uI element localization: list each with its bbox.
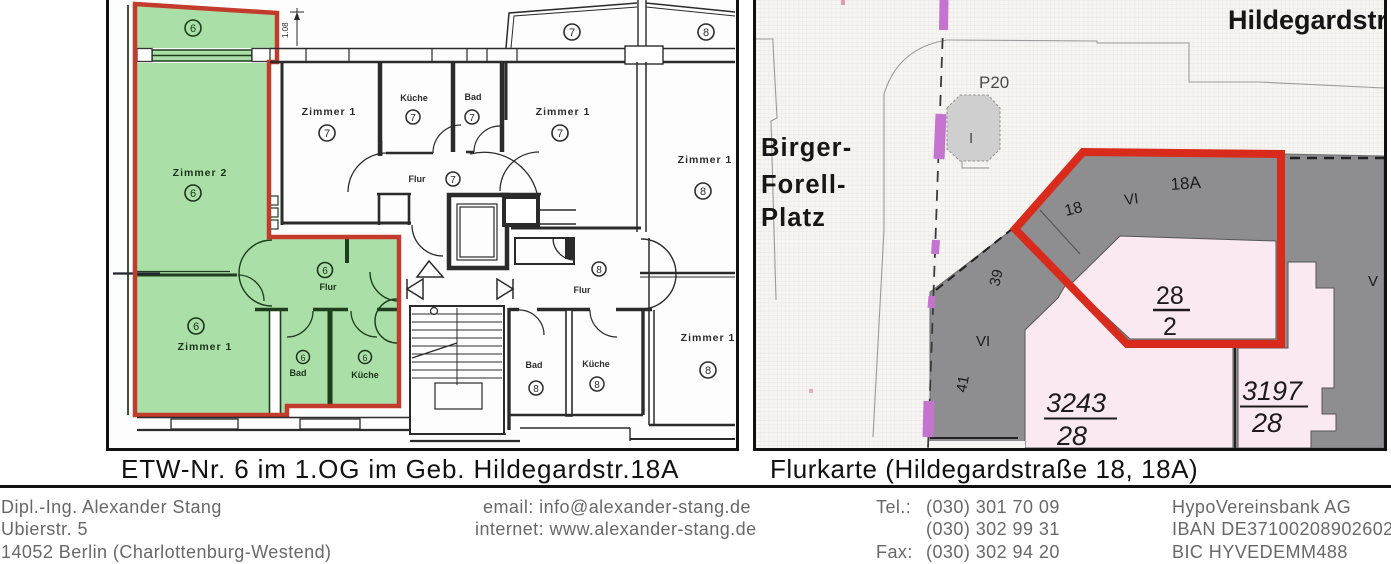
svg-text:Bad: Bad bbox=[464, 92, 481, 102]
svg-text:V: V bbox=[1368, 273, 1378, 290]
svg-text:6: 6 bbox=[300, 353, 305, 363]
svg-text:Küche: Küche bbox=[351, 370, 379, 380]
svg-text:2: 2 bbox=[1163, 313, 1177, 341]
svg-text:I: I bbox=[969, 130, 973, 147]
svg-text:Flur: Flur bbox=[574, 285, 591, 295]
svg-text:6: 6 bbox=[193, 321, 199, 333]
svg-text:Hildegardstr.: Hildegardstr. bbox=[1228, 5, 1384, 35]
svg-text:Bad: Bad bbox=[525, 360, 542, 370]
svg-text:Küche: Küche bbox=[400, 93, 428, 103]
svg-text:3243: 3243 bbox=[1046, 388, 1106, 418]
svg-text:8: 8 bbox=[700, 186, 706, 198]
svg-text:Zimmer 1: Zimmer 1 bbox=[302, 106, 357, 118]
svg-text:Küche: Küche bbox=[582, 359, 610, 369]
svg-text:7: 7 bbox=[569, 27, 575, 39]
svg-text:Birger-: Birger- bbox=[761, 134, 852, 162]
svg-text:7: 7 bbox=[557, 128, 563, 140]
svg-text:Forell-: Forell- bbox=[761, 171, 847, 199]
svg-text:6: 6 bbox=[322, 266, 328, 277]
svg-text:7: 7 bbox=[469, 113, 475, 124]
svg-text:Zimmer 1: Zimmer 1 bbox=[681, 332, 735, 344]
svg-text:8: 8 bbox=[705, 365, 711, 377]
svg-text:1.08: 1.08 bbox=[281, 22, 290, 38]
svg-text:8: 8 bbox=[596, 265, 602, 276]
svg-text:Zimmer 1: Zimmer 1 bbox=[678, 154, 733, 166]
svg-text:P20: P20 bbox=[979, 73, 1009, 92]
svg-text:18A: 18A bbox=[1170, 173, 1202, 194]
svg-text:28: 28 bbox=[1251, 408, 1282, 438]
svg-text:6: 6 bbox=[362, 353, 367, 363]
svg-text:41: 41 bbox=[953, 374, 973, 393]
svg-text:Zimmer 1: Zimmer 1 bbox=[178, 341, 233, 353]
svg-text:8: 8 bbox=[533, 384, 539, 395]
svg-text:Zimmer 2: Zimmer 2 bbox=[173, 167, 228, 179]
svg-text:28: 28 bbox=[1056, 421, 1087, 448]
svg-text:8: 8 bbox=[594, 380, 600, 391]
svg-text:3197: 3197 bbox=[1242, 376, 1303, 406]
svg-text:Flur: Flur bbox=[409, 174, 426, 184]
svg-text:8: 8 bbox=[703, 27, 709, 39]
svg-text:Bad: Bad bbox=[289, 368, 306, 378]
svg-text:7: 7 bbox=[324, 128, 330, 140]
svg-text:Zimmer 1: Zimmer 1 bbox=[536, 106, 591, 118]
svg-text:28: 28 bbox=[1156, 282, 1184, 310]
svg-text:6: 6 bbox=[190, 188, 196, 200]
svg-text:VI: VI bbox=[976, 333, 990, 350]
svg-text:VI: VI bbox=[1123, 190, 1139, 209]
svg-text:7: 7 bbox=[450, 175, 456, 186]
svg-text:7: 7 bbox=[410, 113, 416, 124]
svg-text:Platz: Platz bbox=[761, 204, 826, 232]
svg-text:6: 6 bbox=[190, 23, 196, 35]
svg-text:Flur: Flur bbox=[320, 282, 337, 292]
